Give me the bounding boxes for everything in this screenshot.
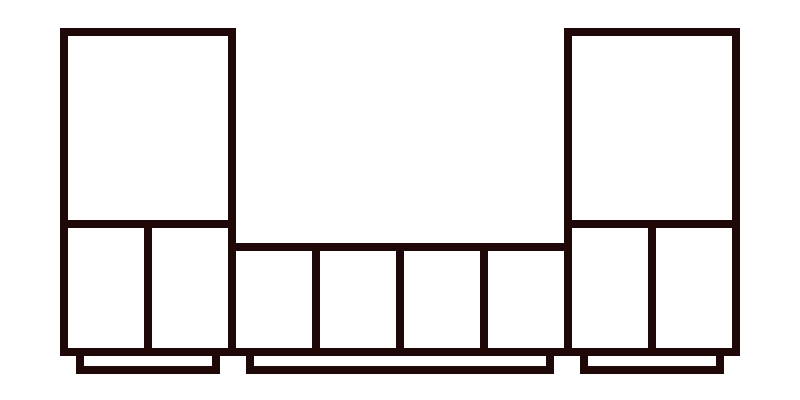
center-door-divider-3 <box>480 251 488 348</box>
right-cabinet-shelf-divider <box>564 220 740 228</box>
left-cabinet-door-divider <box>144 228 152 348</box>
center-door-divider-1 <box>312 251 320 348</box>
center-plinth <box>246 348 554 374</box>
left-cabinet-shelf-divider <box>60 220 236 228</box>
center-door-divider-2 <box>396 251 404 348</box>
left-plinth <box>76 348 220 374</box>
right-cabinet-door-divider <box>648 228 656 348</box>
right-plinth <box>580 348 724 374</box>
furniture-elevation-diagram <box>0 0 800 400</box>
